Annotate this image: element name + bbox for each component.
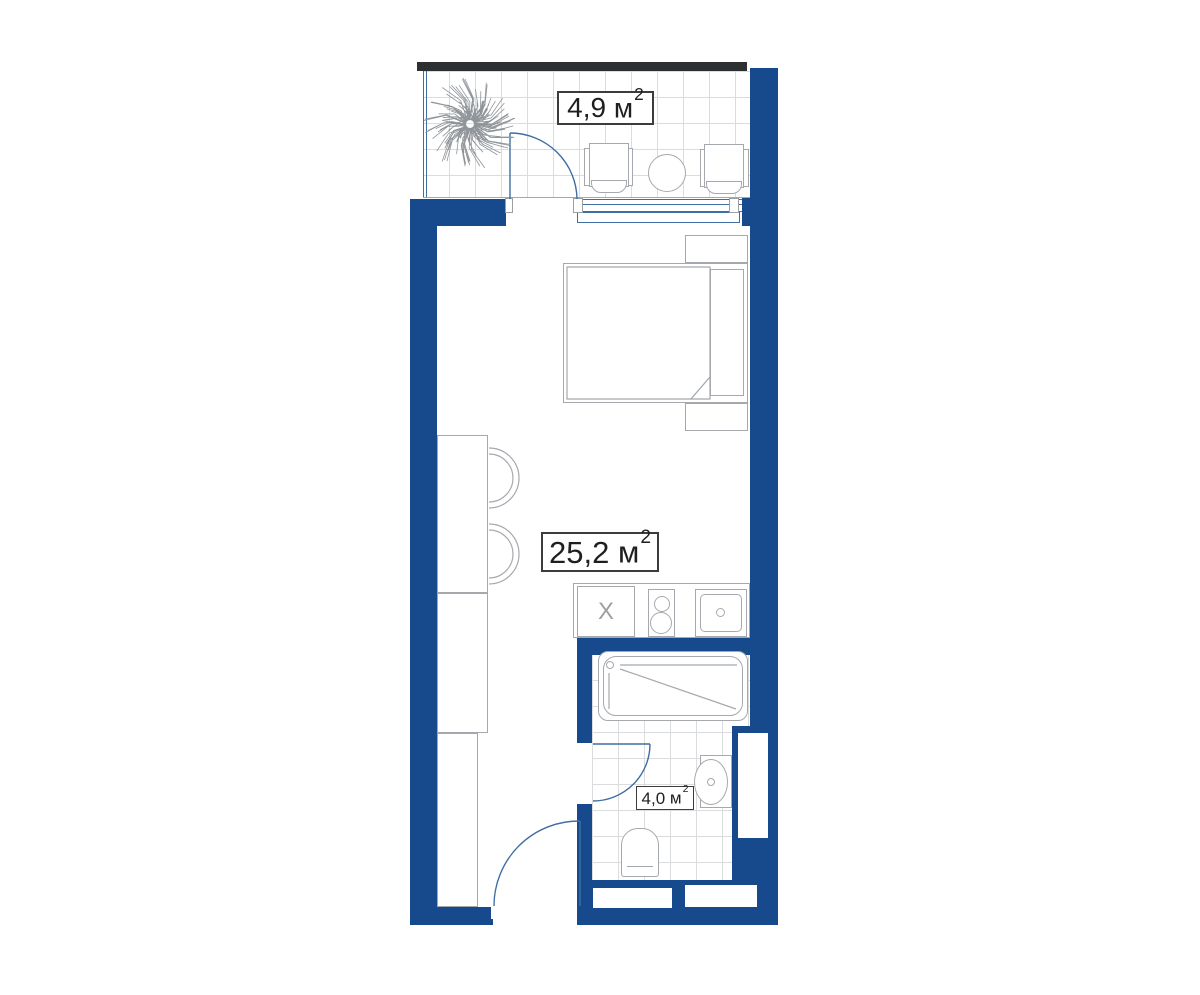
window-sill [577, 212, 740, 223]
window-jamb [573, 198, 583, 213]
living-area-label: 25,2м2 [541, 532, 659, 572]
floor-plan: X 4, [0, 0, 1200, 995]
wall-window-end [742, 198, 752, 226]
window [576, 199, 742, 212]
kitchen-appliance: X [577, 586, 635, 637]
balcony-door-jamb [505, 198, 513, 213]
entrance-door-swing-arc [494, 821, 580, 906]
chair-base [591, 180, 627, 193]
balcony-table [648, 154, 686, 192]
balcony-railing [423, 71, 427, 198]
bathroom-area-label: 4,0м2 [636, 786, 694, 810]
area-unit: м2 [614, 93, 644, 122]
entrance-door-jamb [491, 906, 497, 919]
nightstand-top [685, 235, 748, 263]
wall-balcony-pier [410, 199, 506, 226]
duct-niche [685, 885, 757, 907]
washbasin-faucet [707, 778, 715, 786]
bathtub-faucet [606, 661, 614, 669]
bathtub-basin [603, 656, 743, 716]
stove-burner-small [654, 596, 670, 612]
wall-bottom-left-stub [410, 907, 493, 925]
wardrobe [437, 435, 488, 593]
sink-drain [716, 608, 725, 617]
balcony-area-label: 4,9м2 [557, 91, 654, 125]
wardrobe-door-arc-inner [489, 530, 513, 578]
duct-niche [593, 888, 672, 908]
wardrobe-door-arc [489, 448, 519, 508]
shaft-niche [738, 733, 768, 838]
bed-pillow [710, 269, 744, 396]
wall-bathroom-left-upper [577, 654, 592, 743]
balcony-top-strip [417, 62, 747, 71]
appliance-mark: X [598, 598, 614, 626]
stove-burner-large [650, 612, 672, 634]
hall-cabinet [437, 733, 478, 907]
wardrobe-lower [437, 593, 488, 733]
wall-left [410, 199, 437, 925]
wardrobe-door-arc [489, 524, 519, 584]
area-unit: м2 [670, 789, 689, 807]
toilet-seat-line [627, 866, 653, 867]
area-value: 4,0 [642, 790, 666, 807]
area-value: 4,9 [567, 94, 606, 122]
wardrobe-door-arc-inner [489, 454, 513, 502]
chair-base [706, 181, 742, 194]
nightstand-bottom [685, 403, 748, 431]
area-value: 25,2 [549, 537, 609, 568]
area-unit: м2 [618, 536, 651, 567]
toilet [621, 828, 659, 877]
window-mid-line [576, 204, 742, 205]
balcony-edge-line [423, 197, 750, 198]
window-jamb [729, 198, 739, 213]
